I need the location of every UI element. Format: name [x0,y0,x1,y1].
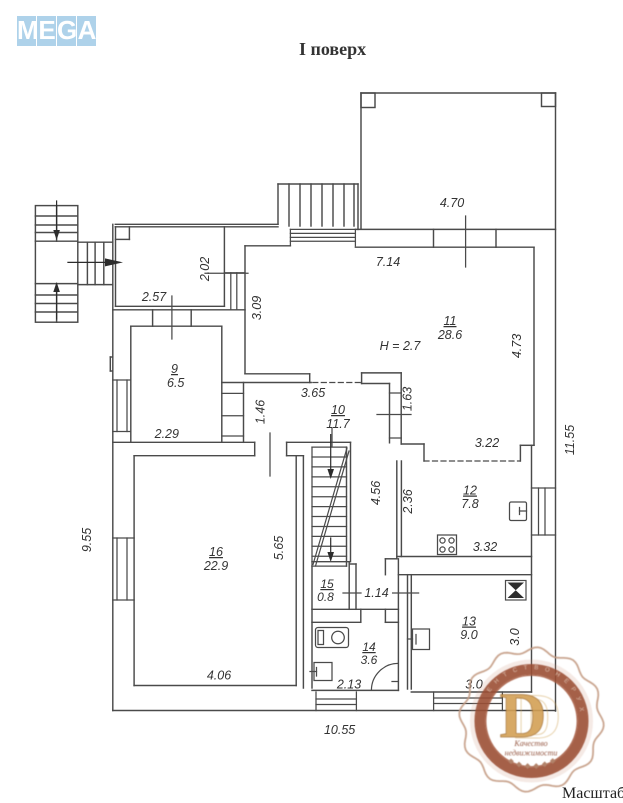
svg-text:1.14: 1.14 [364,586,388,600]
svg-text:3.6: 3.6 [361,653,378,667]
svg-text:11.55: 11.55 [563,425,577,455]
svg-text:11.7: 11.7 [326,417,350,431]
svg-text:7.14: 7.14 [376,255,400,269]
svg-text:11: 11 [444,314,457,328]
svg-text:3.0: 3.0 [508,628,522,645]
svg-text:5.65: 5.65 [272,536,286,560]
svg-text:22.9: 22.9 [203,559,228,573]
svg-text:13: 13 [462,615,476,629]
svg-text:2.57: 2.57 [141,290,167,304]
svg-text:2.13: 2.13 [336,678,361,692]
svg-text:4.70: 4.70 [440,196,464,210]
svg-text:16: 16 [209,545,223,559]
svg-text:15: 15 [320,577,334,591]
svg-text:12: 12 [463,484,477,498]
svg-text:4.06: 4.06 [207,669,231,683]
svg-text:4.56: 4.56 [369,481,383,505]
svg-text:10.55: 10.55 [324,723,355,737]
svg-text:3.09: 3.09 [250,296,264,320]
svg-text:Качество: Качество [513,739,547,748]
svg-text:2.02: 2.02 [198,257,212,282]
svg-text:1.46: 1.46 [254,400,268,424]
svg-text:3.32: 3.32 [473,540,497,554]
svg-text:28.6: 28.6 [437,328,462,342]
svg-text:14: 14 [362,640,376,654]
svg-text:4.73: 4.73 [510,334,524,358]
svg-text:9: 9 [171,362,178,376]
svg-text:7.8: 7.8 [461,497,478,511]
svg-text:9.0: 9.0 [460,628,477,642]
svg-text:H = 2.7: H = 2.7 [380,339,422,353]
svg-text:0.8: 0.8 [317,590,334,604]
svg-text:6.5: 6.5 [167,376,184,390]
svg-text:3.65: 3.65 [301,386,325,400]
svg-text:9.55: 9.55 [80,528,94,552]
svg-text:2.36: 2.36 [401,489,415,514]
svg-text:1.63: 1.63 [401,387,415,411]
svg-text:недвижимости: недвижимости [505,749,558,758]
svg-text:3.22: 3.22 [475,436,499,450]
svg-text:2.29: 2.29 [154,427,179,441]
svg-text:10: 10 [331,403,345,417]
